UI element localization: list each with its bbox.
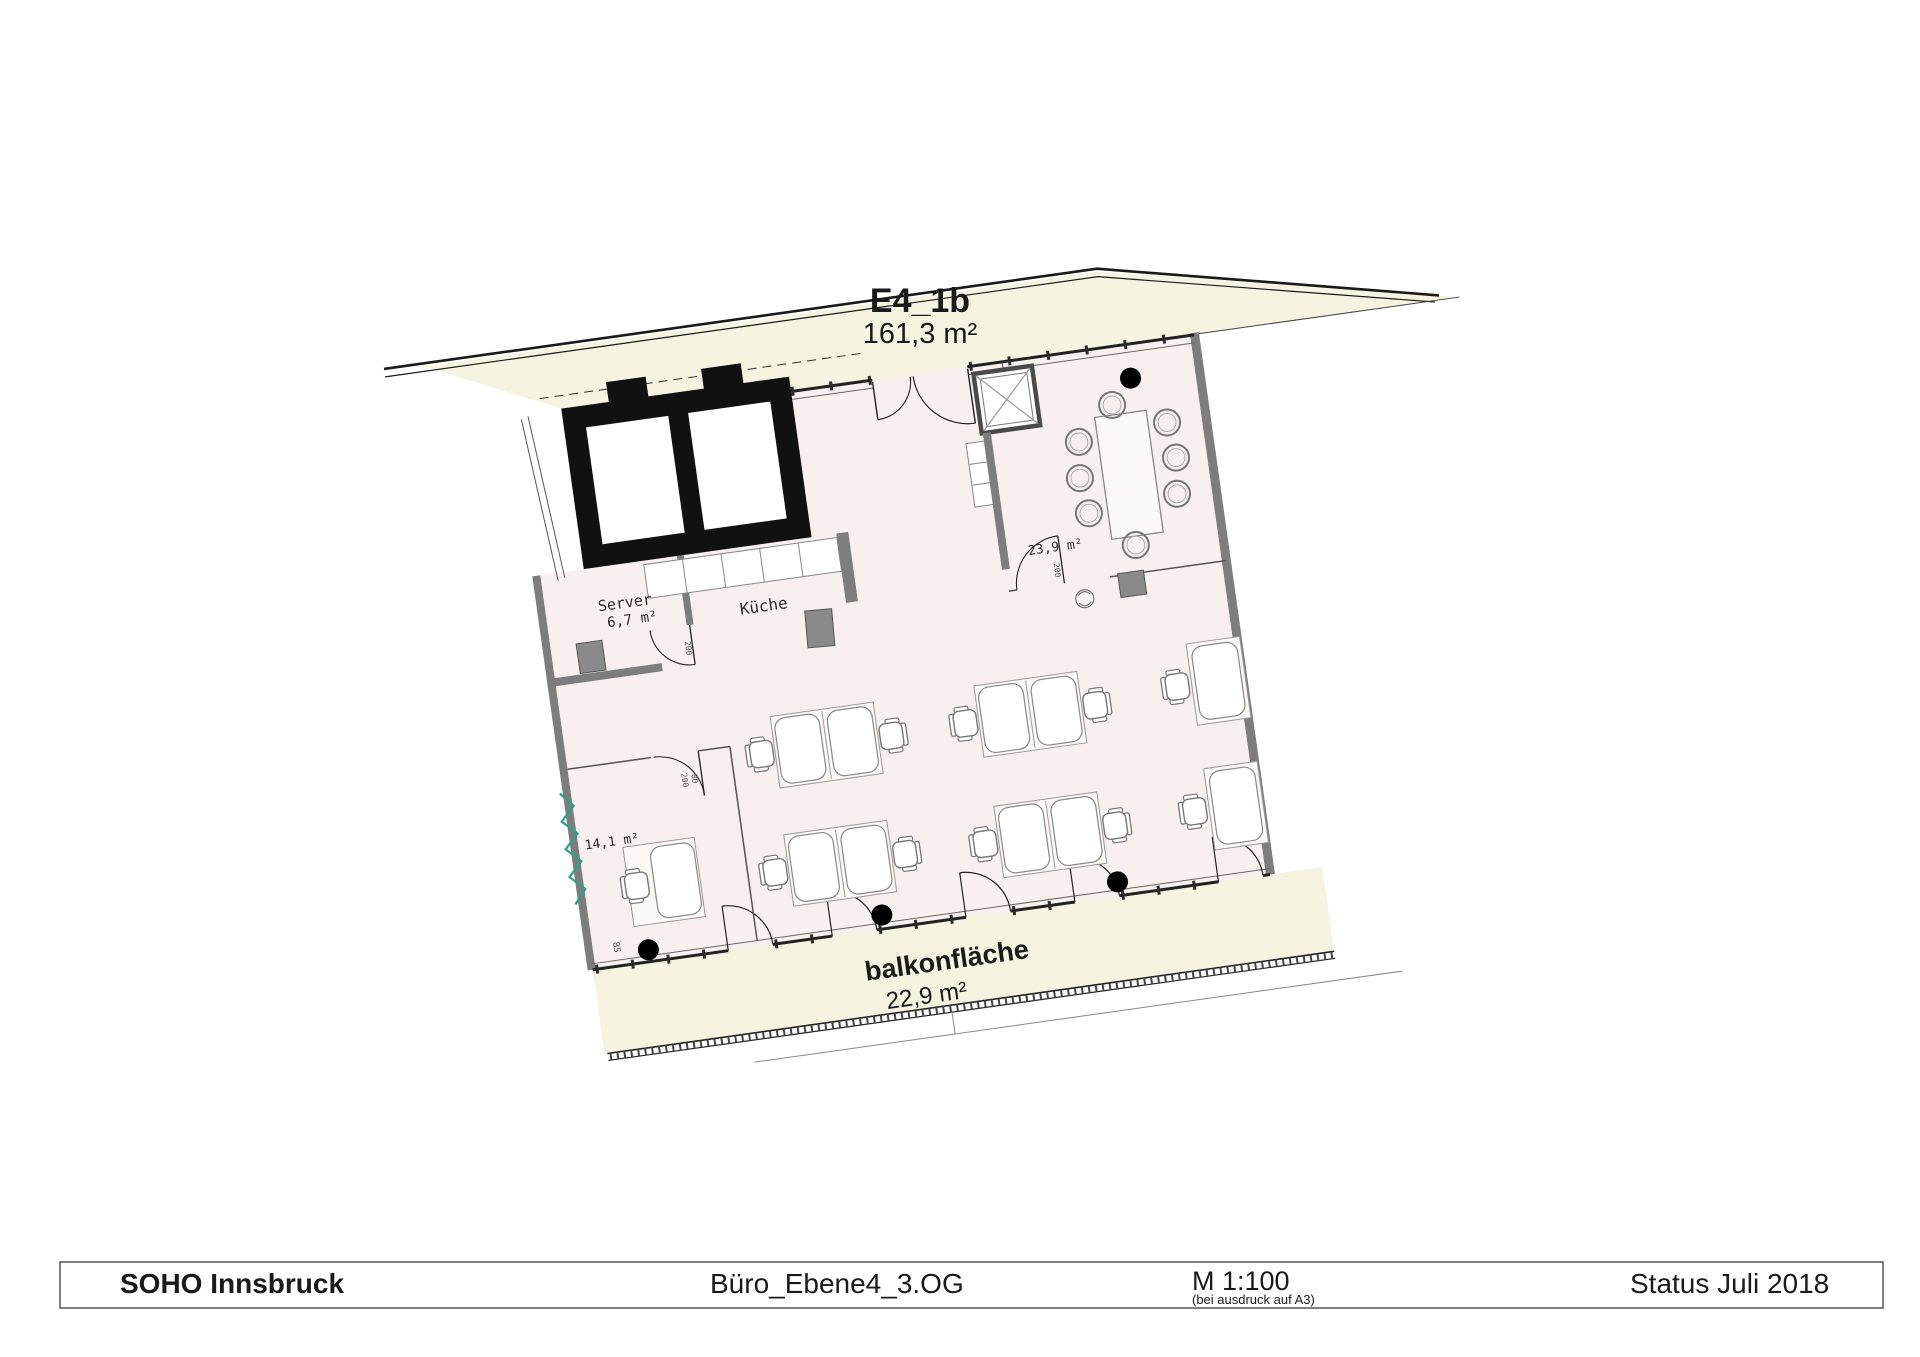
- footer-titleblock: SOHO Innsbruck Büro_Ebene4_3.OG M 1:100 …: [60, 1262, 1883, 1308]
- meeting-sideboard: [1118, 570, 1147, 597]
- floorplan-page: Server 6,7 m² Küche 23,9 m² 14,1 m² balk…: [0, 0, 1920, 1357]
- footer-status: Status Juli 2018: [1630, 1268, 1829, 1299]
- unit-area: 161,3 m²: [863, 318, 978, 350]
- unit-title: E4_1b: [870, 282, 970, 320]
- floorplan-drawing: Server 6,7 m² Küche 23,9 m² 14,1 m² balk…: [0, 0, 1920, 1357]
- plan-rotated-group: Server 6,7 m² Küche 23,9 m² 14,1 m² balk…: [384, 219, 1554, 1100]
- kitchen-island: [805, 609, 835, 648]
- dim-wall-mark: 85: [610, 941, 621, 953]
- footer-scale-note: (bei ausdruck auf A3): [1192, 1292, 1315, 1307]
- footer-project: SOHO Innsbruck: [120, 1268, 344, 1299]
- dim-office-door-width: 80: [689, 773, 699, 784]
- footer-drawing: Büro_Ebene4_3.OG: [710, 1268, 964, 1299]
